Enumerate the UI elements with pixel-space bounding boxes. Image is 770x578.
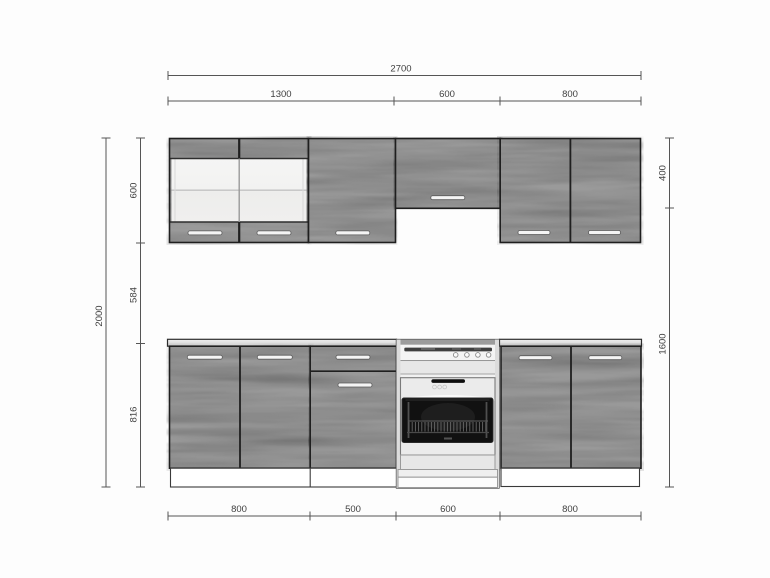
svg-text:800: 800 — [562, 504, 578, 515]
svg-text:600: 600 — [129, 183, 140, 199]
svg-text:600: 600 — [439, 89, 455, 100]
svg-text:2700: 2700 — [390, 64, 411, 75]
svg-text:500: 500 — [345, 504, 361, 515]
svg-text:800: 800 — [562, 89, 578, 100]
svg-text:600: 600 — [440, 504, 456, 515]
svg-text:584: 584 — [129, 287, 140, 303]
svg-text:1600: 1600 — [658, 333, 669, 354]
svg-text:2000: 2000 — [94, 305, 105, 326]
svg-text:816: 816 — [129, 407, 140, 423]
svg-text:1300: 1300 — [270, 89, 291, 100]
svg-text:800: 800 — [231, 504, 247, 515]
svg-text:400: 400 — [658, 165, 669, 181]
